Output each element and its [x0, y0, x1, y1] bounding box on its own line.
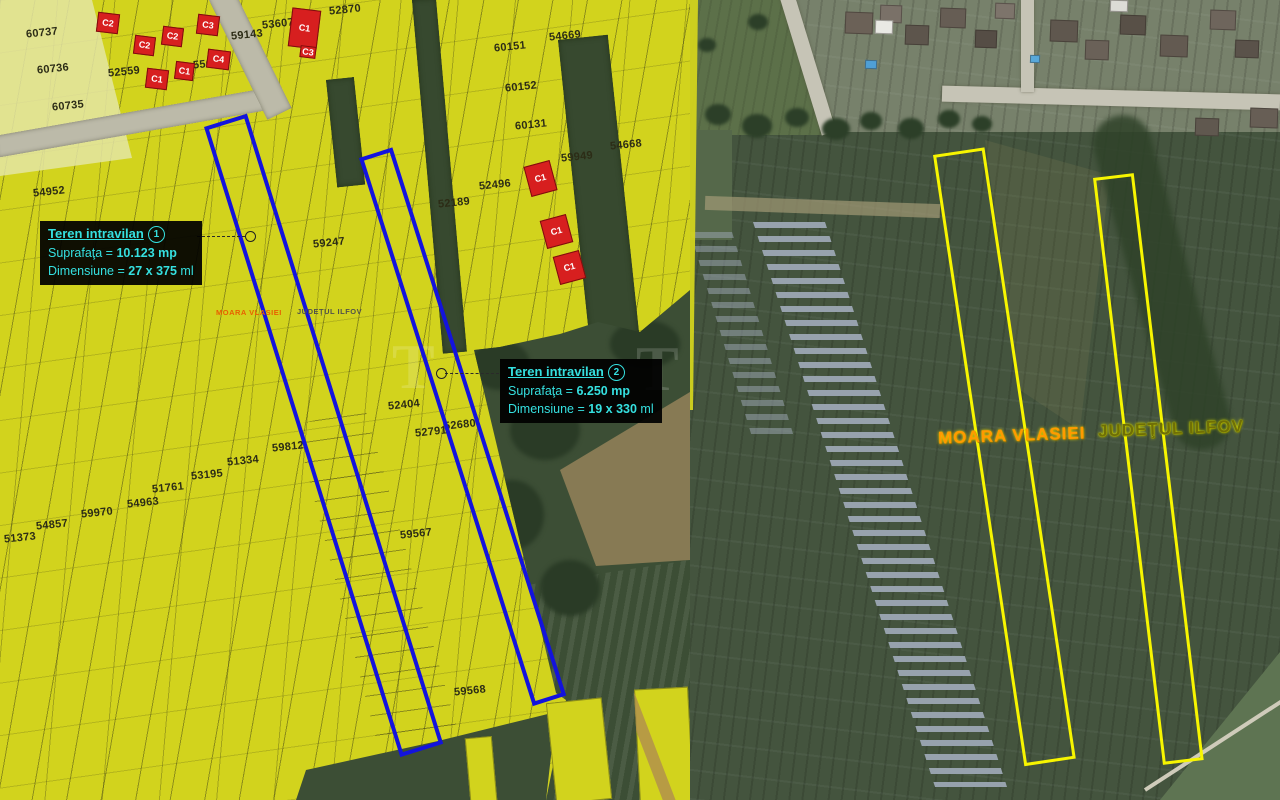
building-label: C3 [302, 47, 315, 57]
annotation-parcel-1: Teren intravilan1 Suprafaţa = 10.123 mp … [40, 221, 202, 285]
building-label: C3 [202, 20, 215, 30]
house-roof [1085, 40, 1110, 61]
tree [742, 114, 772, 138]
annotation-dimension: Dimensiune = 19 x 330 ml [508, 400, 654, 418]
annotation-index-badge: 1 [148, 226, 165, 243]
building-label: C1 [151, 74, 164, 84]
leader-marker-1 [245, 231, 256, 242]
listing-image: T T 607376073660735525595569559143536075… [0, 0, 1280, 800]
tree [898, 118, 924, 139]
building-label: C2 [166, 31, 179, 41]
house-roof [940, 8, 967, 29]
aerial-photo-pane: MOARA VLASIEI JUDEŢUL ILFOV [690, 0, 1280, 800]
house-roof [1160, 35, 1189, 58]
tree [938, 110, 960, 128]
tree [785, 108, 809, 127]
house-roof [1050, 20, 1079, 43]
annotation-area: Suprafaţa = 6.250 mp [508, 382, 654, 400]
locality-label-small: MOARA VLASIEI [216, 308, 282, 317]
building-C2: C2 [96, 12, 120, 35]
side-road [1021, 0, 1034, 92]
building-C3: C3 [299, 45, 316, 59]
building-C1: C1 [174, 61, 195, 81]
tree [860, 112, 882, 130]
tree [748, 14, 768, 30]
tree-cluster [540, 560, 600, 616]
house-roof [1120, 15, 1147, 36]
tree [698, 38, 716, 52]
building-C2: C2 [161, 26, 184, 47]
building-C1: C1 [145, 68, 169, 91]
house-roof [1195, 118, 1220, 137]
leader-line-1 [197, 236, 245, 237]
annotation-title: Teren intravilan2 [508, 363, 654, 382]
annotation-area: Suprafaţa = 10.123 mp [48, 244, 194, 262]
building-label: C2 [138, 40, 151, 50]
annotation-title: Teren intravilan1 [48, 225, 194, 244]
house-roof [1250, 108, 1279, 129]
dirt-road [634, 687, 678, 800]
house-roof [975, 30, 998, 49]
annotation-index-badge: 2 [608, 364, 625, 381]
building-label: C1 [178, 66, 191, 76]
building-label: C1 [550, 226, 563, 238]
county-label-small: JUDEŢUL ILFOV [297, 307, 362, 316]
tree [705, 104, 731, 125]
grass-edge [690, 130, 732, 240]
building-C1: C1 [288, 7, 322, 49]
parcel-patch [546, 697, 612, 800]
house-roof [875, 20, 893, 35]
building-C3: C3 [196, 14, 220, 37]
annotation-parcel-2: Teren intravilan2 Suprafaţa = 6.250 mp D… [500, 359, 662, 423]
building-label: C4 [212, 54, 225, 64]
leader-line-2 [445, 373, 499, 374]
house-roof [845, 12, 874, 35]
building-label: C1 [534, 173, 547, 185]
building-label: C1 [298, 23, 311, 33]
building-label: C2 [102, 18, 115, 28]
house-roof [1030, 55, 1040, 63]
parcel-patch [634, 687, 690, 800]
building-C4: C4 [206, 49, 231, 71]
house-roof [1235, 40, 1260, 59]
house-roof [865, 60, 877, 69]
tree [972, 116, 992, 132]
building-label: C1 [563, 262, 576, 274]
cadastral-map-pane: T T 607376073660735525595569559143536075… [0, 0, 690, 800]
house-roof [995, 3, 1016, 20]
building-C2: C2 [133, 35, 156, 56]
house-roof [1210, 10, 1237, 31]
tree [822, 118, 850, 140]
annotation-dimension: Dimensiune = 27 x 375 ml [48, 262, 194, 280]
leader-marker-2 [436, 368, 447, 379]
house-roof [905, 25, 930, 46]
house-roof [1110, 0, 1128, 12]
